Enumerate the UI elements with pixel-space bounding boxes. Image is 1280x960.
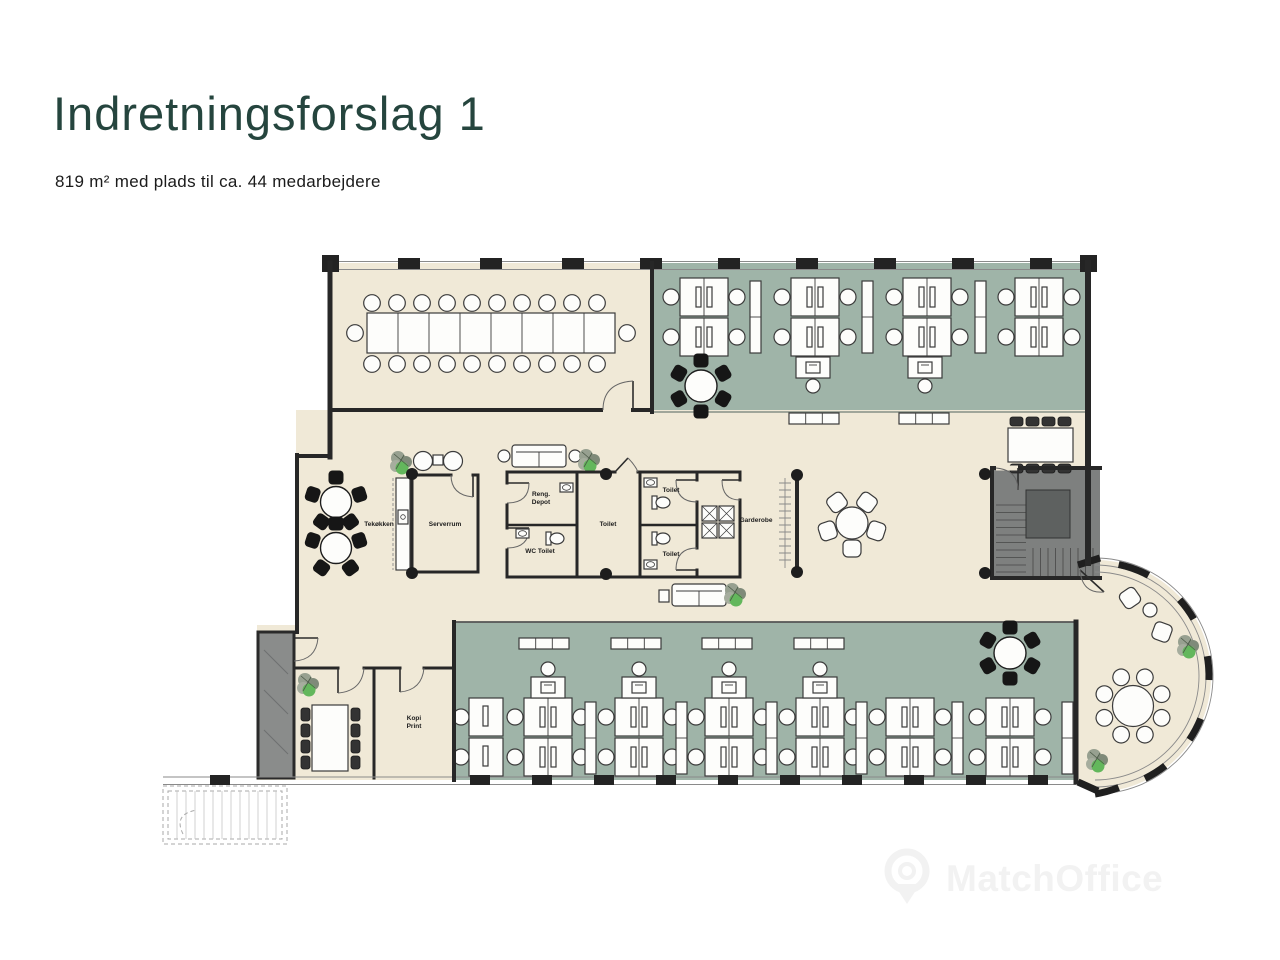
sink	[644, 560, 657, 569]
room-label-serverrum: Serverrum	[429, 521, 462, 528]
sofa	[512, 445, 566, 467]
toilet-fixture	[652, 496, 670, 509]
watermark-text: MatchOffice	[946, 858, 1163, 900]
room-label-toilet-top: Toilet	[663, 487, 681, 494]
cabinet	[519, 638, 569, 649]
room-label-toilet-bottom: Toilet	[663, 551, 681, 558]
cabinet	[1062, 702, 1073, 774]
cabinet	[856, 702, 867, 774]
toilet-fixture	[652, 532, 670, 545]
room-label-kopi: Kopi	[407, 715, 422, 722]
conference-room	[347, 295, 636, 373]
exterior-stair	[163, 786, 287, 844]
sofa	[672, 584, 726, 606]
armchair	[444, 452, 463, 471]
cabinet	[794, 638, 844, 649]
matchoffice-watermark: MatchOffice	[880, 846, 1163, 911]
cabinet	[611, 638, 661, 649]
chair	[364, 295, 381, 312]
cabinet	[899, 413, 949, 424]
meeting-table	[312, 705, 348, 771]
cabinet	[862, 281, 873, 353]
stair-core	[1026, 490, 1070, 538]
cabinet	[789, 413, 839, 424]
floor-plan: Tekøkken Serverrum Reng. Depot WC Toilet	[0, 0, 1280, 960]
cabinet	[702, 638, 752, 649]
room-label-print: Print	[407, 723, 423, 730]
cabinet	[975, 281, 986, 353]
map-pin-icon	[880, 846, 934, 911]
shaft	[258, 632, 294, 778]
cabinet	[676, 702, 687, 774]
armchair	[414, 452, 433, 471]
room-label-depot: Depot	[532, 499, 551, 506]
cabinet	[750, 281, 761, 353]
room-label-reng: Reng.	[532, 491, 550, 498]
toilet-fixture	[546, 532, 564, 545]
room-label-toilet-mid: Toilet	[600, 521, 618, 528]
sink	[516, 529, 529, 538]
cabinet	[952, 702, 963, 774]
cabinet	[585, 702, 596, 774]
slide: Indretningsforslag 1 819 m² med plads ti…	[0, 0, 1280, 960]
sink	[560, 483, 573, 492]
room-label-garderobe: Garderobe	[740, 517, 773, 524]
room-label-wc-toilet: WC Toilet	[525, 548, 555, 555]
sink	[644, 478, 657, 487]
room-label-tekokken: Tekøkken	[364, 521, 394, 528]
cabinet	[766, 702, 777, 774]
